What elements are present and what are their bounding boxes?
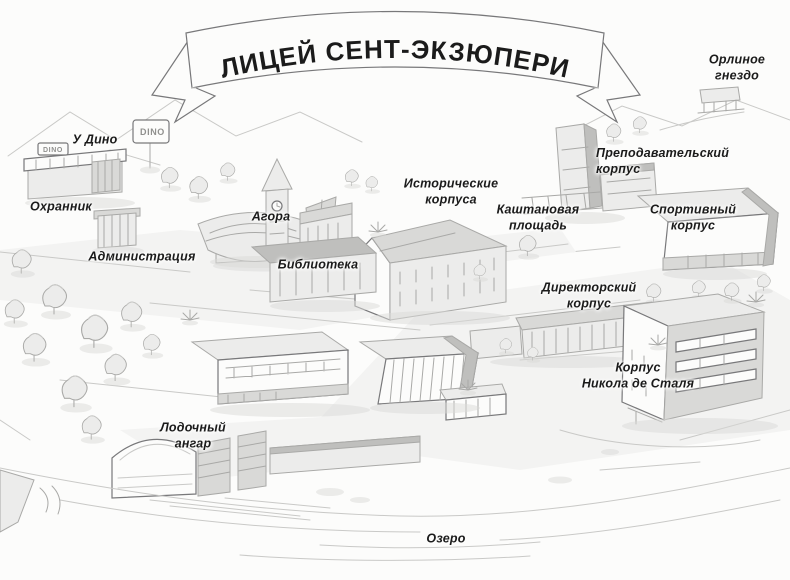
tree	[81, 416, 105, 444]
label-agora: Агора	[252, 209, 291, 225]
boat-hangar	[112, 431, 420, 520]
label-library: Библиотека	[278, 257, 358, 273]
tree	[22, 333, 51, 366]
label-historic-buildings: Исторические корпуса	[404, 177, 498, 208]
label-sports-building: Спортивный корпус	[650, 203, 736, 234]
tree	[606, 124, 624, 145]
tree	[4, 300, 28, 328]
label-lake: Озеро	[426, 531, 465, 547]
label-eagles-nest: Орлиное гнездо	[709, 53, 765, 84]
tree	[189, 177, 212, 203]
dino-pole-sign: DINO	[133, 120, 169, 174]
label-teachers-building: Преподавательский корпус	[596, 146, 729, 177]
map-illustration: DINO DINO	[0, 0, 790, 580]
tree	[103, 354, 130, 385]
label-guard: Охранник	[30, 199, 92, 215]
tree	[220, 163, 238, 184]
label-dinos: У Дино	[73, 132, 118, 148]
tree	[632, 117, 649, 136]
tree	[344, 170, 361, 189]
tree	[60, 376, 92, 413]
label-chestnut-square: Каштановая площадь	[497, 203, 580, 234]
tree	[365, 176, 380, 193]
modern-classroom-buildings	[192, 332, 506, 420]
tree	[756, 275, 773, 294]
tree	[142, 334, 163, 358]
dino-awning-sign: DINO	[43, 147, 63, 154]
dino-sign-text: DINO	[140, 127, 165, 137]
label-stael-building: Корпус Никола де Сталя	[582, 361, 694, 392]
label-boat-hangar: Лодочный ангар	[160, 421, 226, 452]
tree	[160, 167, 181, 191]
label-administration: Администрация	[88, 249, 195, 265]
plant	[369, 222, 387, 237]
banner-ribbon: ЛИЦЕЙ СЕНТ-ЭКЗЮПЕРИ	[152, 12, 640, 123]
campus-map: DINO DINO	[0, 0, 790, 580]
label-directors-building: Директорский корпус	[542, 281, 637, 312]
eagles-nest-chalet	[660, 87, 744, 130]
tree	[80, 315, 113, 353]
